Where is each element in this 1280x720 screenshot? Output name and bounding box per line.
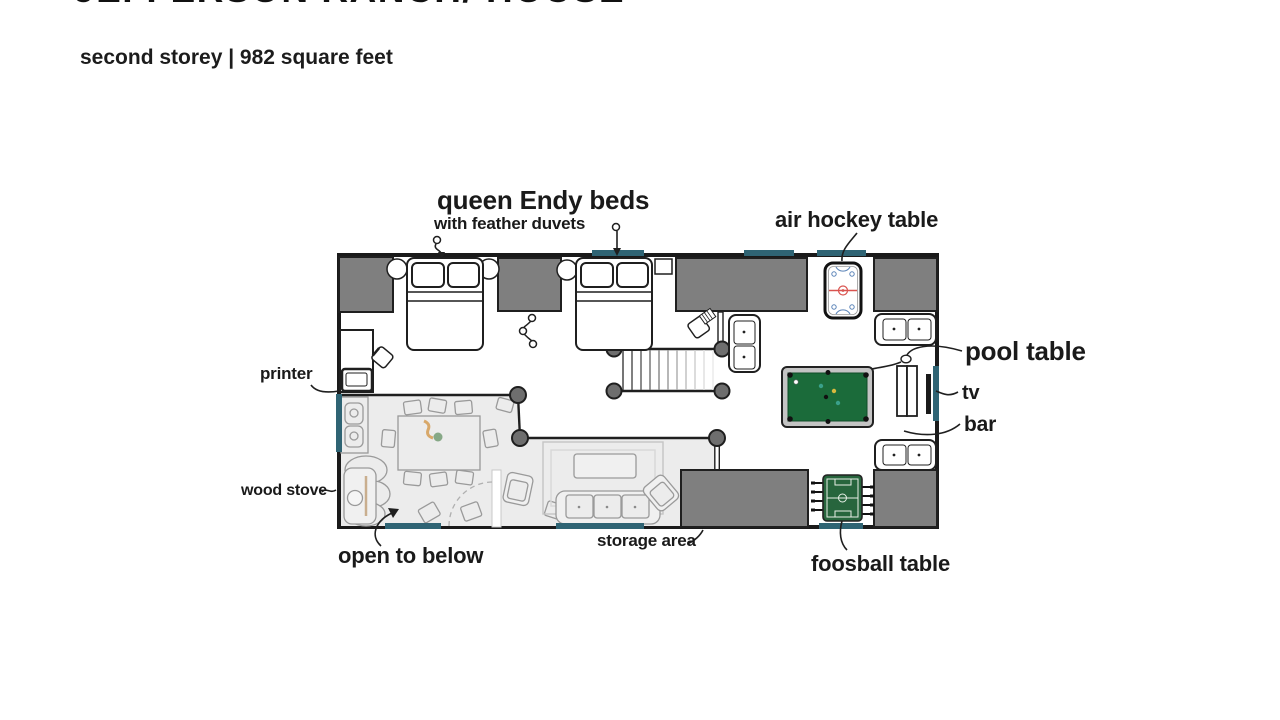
closet — [498, 258, 561, 311]
railing-post — [709, 430, 725, 446]
nightstand — [655, 259, 672, 274]
pool-table — [782, 367, 873, 427]
label-tv: tv — [962, 382, 979, 405]
label-wood-stove: wood stove — [241, 482, 327, 500]
leader-printer — [311, 385, 339, 392]
label-bar: bar — [964, 413, 996, 437]
bar-counter — [897, 366, 917, 416]
label-printer: printer — [260, 364, 312, 384]
loveseat-bottom-right — [875, 440, 936, 470]
closet — [339, 257, 393, 312]
railing-post — [510, 387, 526, 403]
label-queen-beds: queen Endy beds — [437, 185, 649, 216]
closet — [874, 470, 937, 527]
leader-tv — [936, 391, 958, 395]
closet — [676, 258, 807, 311]
label-open-to-below: open to below — [338, 543, 483, 569]
label-feather-duvets: with feather duvets — [434, 214, 585, 234]
air-hockey-table — [825, 263, 861, 318]
window — [556, 523, 644, 529]
window — [336, 394, 342, 452]
label-storage-area: storage area — [597, 531, 696, 551]
loveseat-top-right — [875, 314, 936, 345]
storage-area-block — [681, 470, 808, 527]
kitchen-sink-below — [341, 397, 368, 453]
label-air-hockey: air hockey table — [775, 207, 938, 233]
floor-plan-page: JEFFERSON RANCH/ HOUSE second storey | 9… — [0, 0, 1280, 720]
floor-plan-canvas — [0, 0, 1280, 720]
tv-screen — [926, 374, 931, 414]
window — [385, 523, 441, 529]
wall-below — [492, 470, 501, 527]
railing-post — [512, 430, 528, 446]
window — [817, 250, 866, 256]
window — [744, 250, 794, 256]
window — [933, 366, 939, 421]
closet — [874, 258, 937, 311]
loveseat-by-stairs — [729, 315, 760, 372]
label-pool-table: pool table — [965, 336, 1086, 367]
label-foosball: foosball table — [811, 551, 950, 577]
wood-stove — [344, 456, 390, 526]
